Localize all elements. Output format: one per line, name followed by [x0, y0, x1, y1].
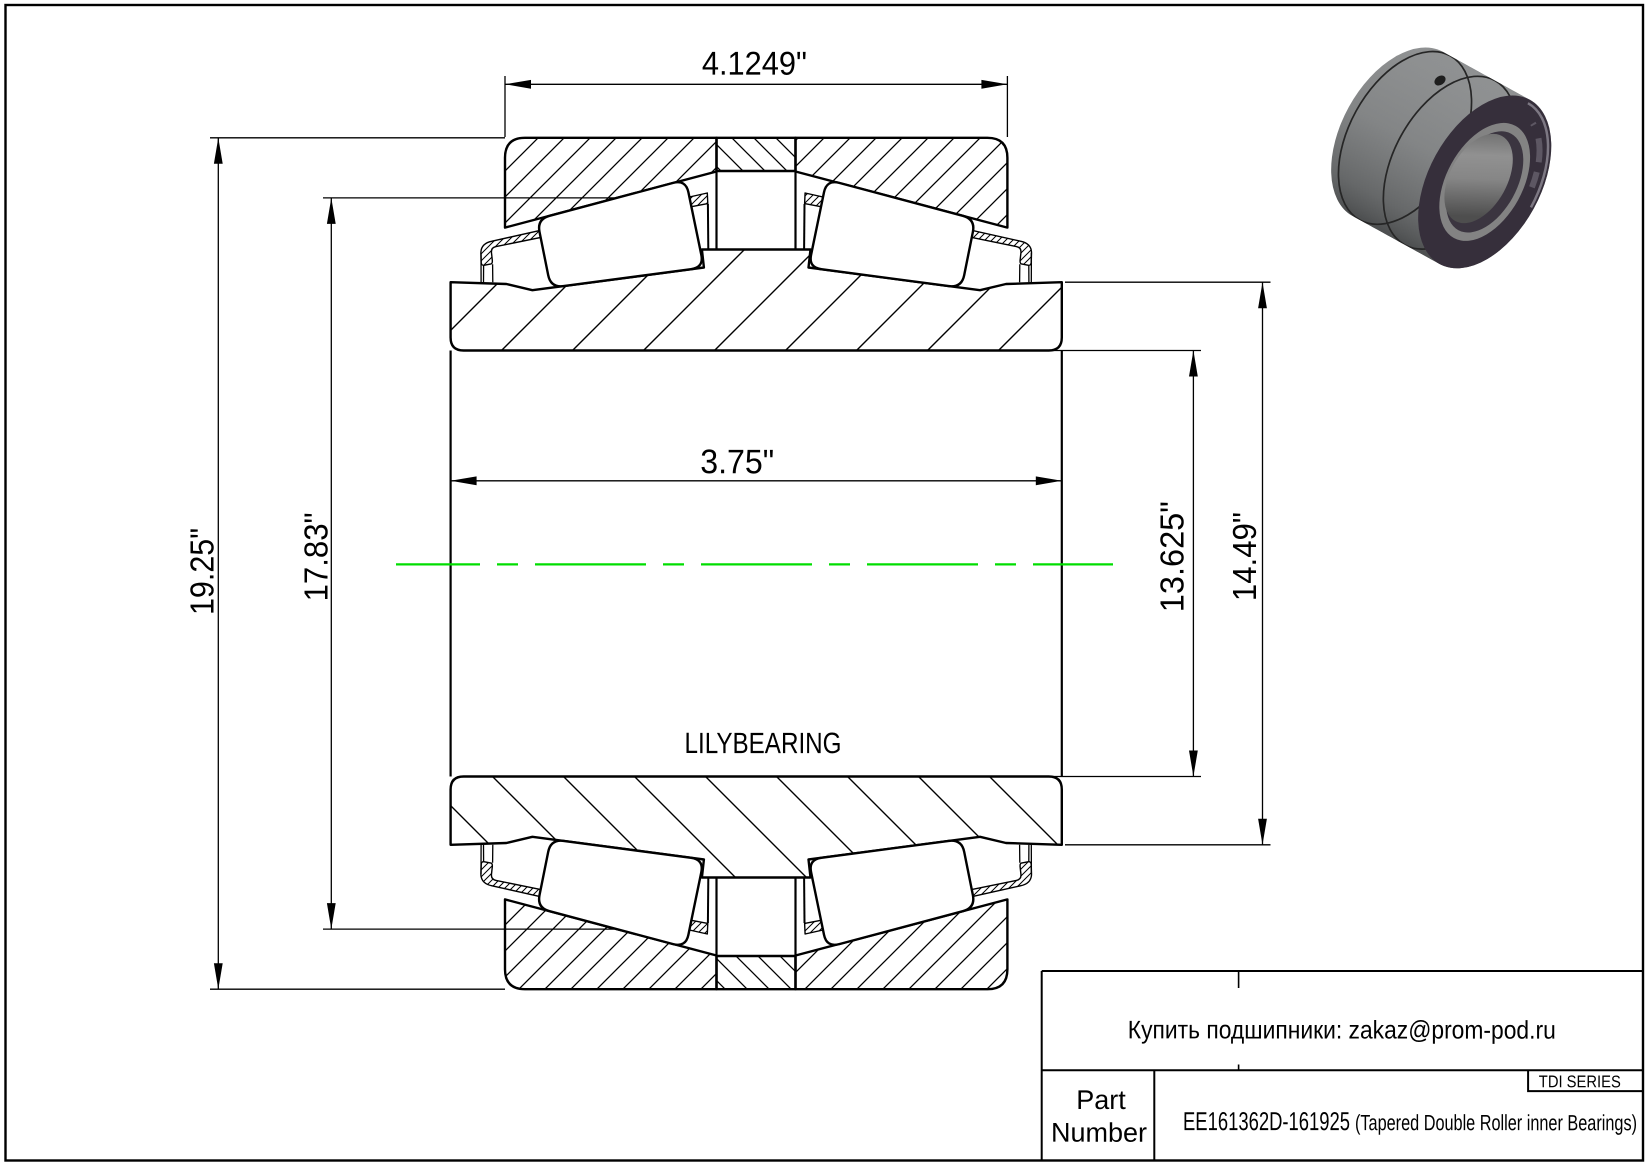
svg-text:13.625": 13.625" — [1153, 501, 1190, 612]
svg-text:TDI SERIES: TDI SERIES — [1539, 1072, 1621, 1091]
svg-text:EE161362D-161925: EE161362D-161925 — [1183, 1106, 1350, 1136]
svg-text:Number: Number — [1051, 1118, 1147, 1148]
svg-text:4.1249": 4.1249" — [702, 45, 807, 82]
svg-text:Part: Part — [1076, 1085, 1126, 1115]
svg-text:17.83": 17.83" — [298, 512, 335, 601]
svg-text:Купить подшипники: zakaz@prom-: Купить подшипники: zakaz@prom-pod.ru — [1128, 1016, 1556, 1044]
svg-text:14.49": 14.49" — [1226, 512, 1263, 601]
svg-text:(Tapered Double Roller inner B: (Tapered Double Roller inner Bearings) — [1355, 1110, 1637, 1135]
svg-text:LILYBEARING: LILYBEARING — [684, 727, 841, 760]
svg-text:19.25": 19.25" — [183, 528, 220, 615]
svg-text:3.75": 3.75" — [700, 443, 774, 481]
